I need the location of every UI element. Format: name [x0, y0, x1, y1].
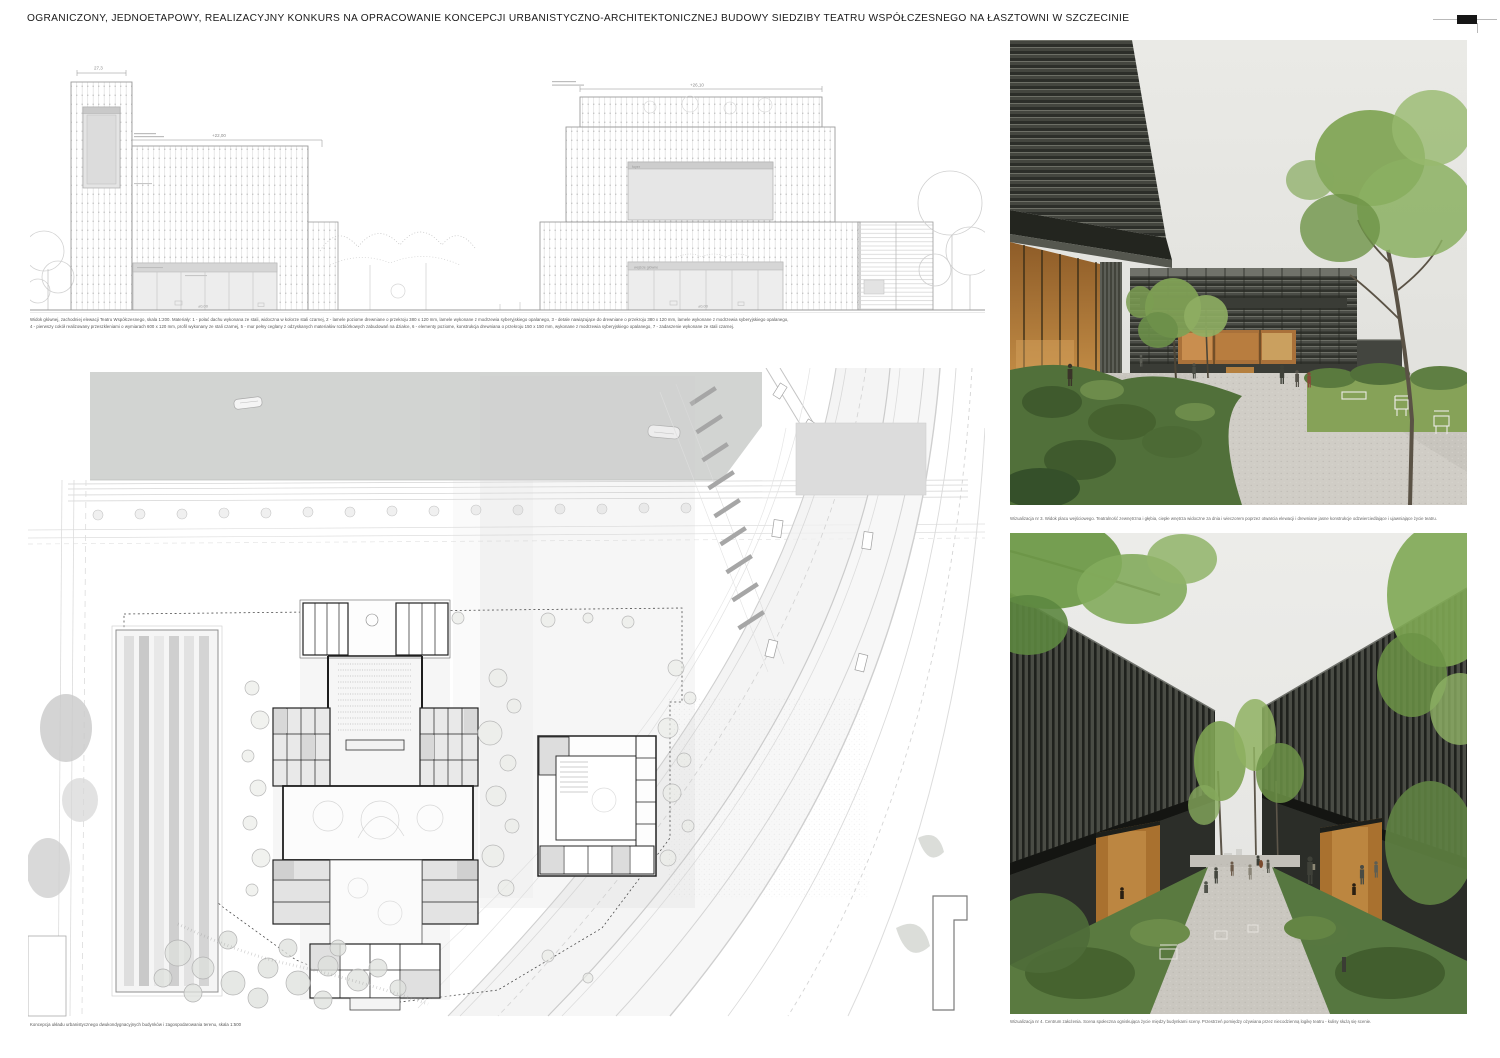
elevation-drawing: 27,3 +22,00 ±0,00 — [30, 55, 985, 317]
mark-vtick — [1477, 23, 1478, 33]
right-entrance-label: wejście główne — [634, 266, 658, 270]
render-photo-entrance-plaza: TEATR WSPÓŁCZESNY — [1010, 40, 1467, 505]
plan-warehouse — [112, 626, 222, 996]
plan-left-canopies — [28, 694, 98, 1016]
elevation-right-wing — [858, 222, 933, 310]
elevation-trees-left — [30, 231, 74, 310]
plan-second-building — [538, 736, 656, 876]
photo2-caption: Wizualizacja nr 4. Centrum założenia. Sc… — [1010, 1019, 1371, 1024]
elevation-caption-line2: 4 - pierwszy cokół realizowany przeszkle… — [30, 323, 788, 330]
tower-dim-label: 27,3 — [94, 66, 103, 71]
elevation-right-volume: +26,10 foyer wejście główne ±0,00 — [540, 81, 860, 310]
elevation-caption: Widok głównej, zachodniej elewacji Teatr… — [30, 316, 788, 330]
site-plan-drawing — [28, 368, 985, 1018]
plan-paved-pad — [796, 423, 926, 495]
render-photo-courtyard — [1010, 533, 1467, 1014]
elevation-caption-line1: Widok głównej, zachodniej elewacji Teatr… — [30, 316, 788, 323]
site-plan-caption: Koncepcja układu urbanistycznego dwukond… — [30, 1021, 241, 1028]
competition-board: OGRANICZONY, JEDNOETAPOWY, REALIZACYJNY … — [0, 0, 1500, 1058]
photo1-lawn — [1304, 363, 1467, 432]
page-title: OGRANICZONY, JEDNOETAPOWY, REALIZACYJNY … — [27, 13, 1129, 24]
plan-corner-building — [933, 896, 967, 1010]
photo1-foreground-bushes — [1010, 365, 1242, 505]
plan-texture — [668, 698, 868, 898]
elevation-fly-tower: 27,3 — [71, 66, 132, 311]
left-level-label: +22,00 — [212, 133, 226, 138]
zero-right-label: ±0,00 — [698, 304, 709, 309]
photo1-caption: Wizualizacja nr 3. Widok placu wejściowe… — [1010, 516, 1437, 521]
zero-left-label: ±0,00 — [198, 304, 209, 309]
panel-label: foyer — [632, 165, 641, 169]
plan-theater-building — [273, 600, 478, 1010]
right-top-level-label: +26,10 — [690, 83, 704, 88]
elevation-courtyard-trees — [320, 232, 475, 310]
elevation-left-volume: +22,00 ±0,00 — [132, 133, 338, 310]
photo2-bollard — [1342, 957, 1346, 972]
mark-block — [1457, 15, 1477, 24]
page-registration-mark — [1433, 13, 1499, 33]
